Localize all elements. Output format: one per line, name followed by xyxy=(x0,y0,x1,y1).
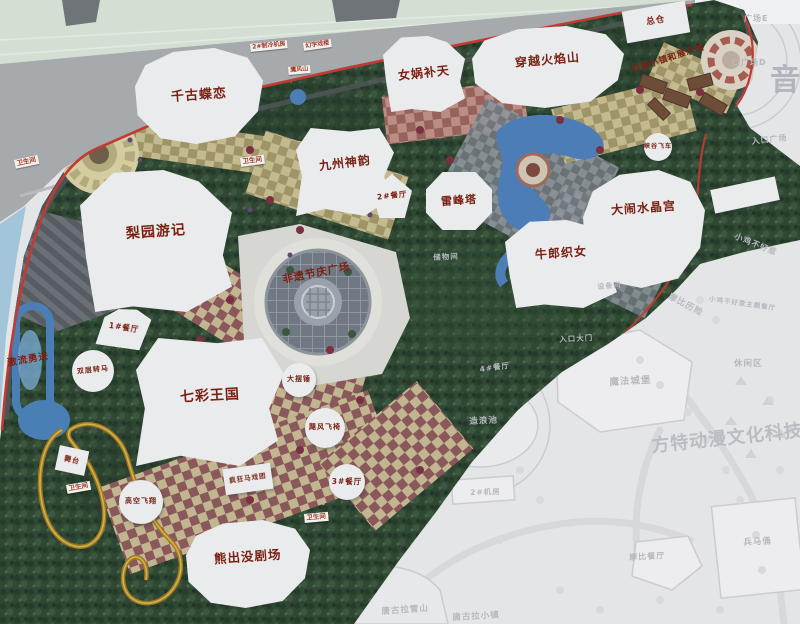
map-scene xyxy=(0,0,800,624)
wall-post-1 xyxy=(62,0,100,26)
theme-park-masterplan-map-photo: 千古蝶恋女娲补天穿越火焰山九州神韵梨园游记雷峰塔大闹水晶宫牛郎织女七彩王国熊出没… xyxy=(0,0,800,624)
